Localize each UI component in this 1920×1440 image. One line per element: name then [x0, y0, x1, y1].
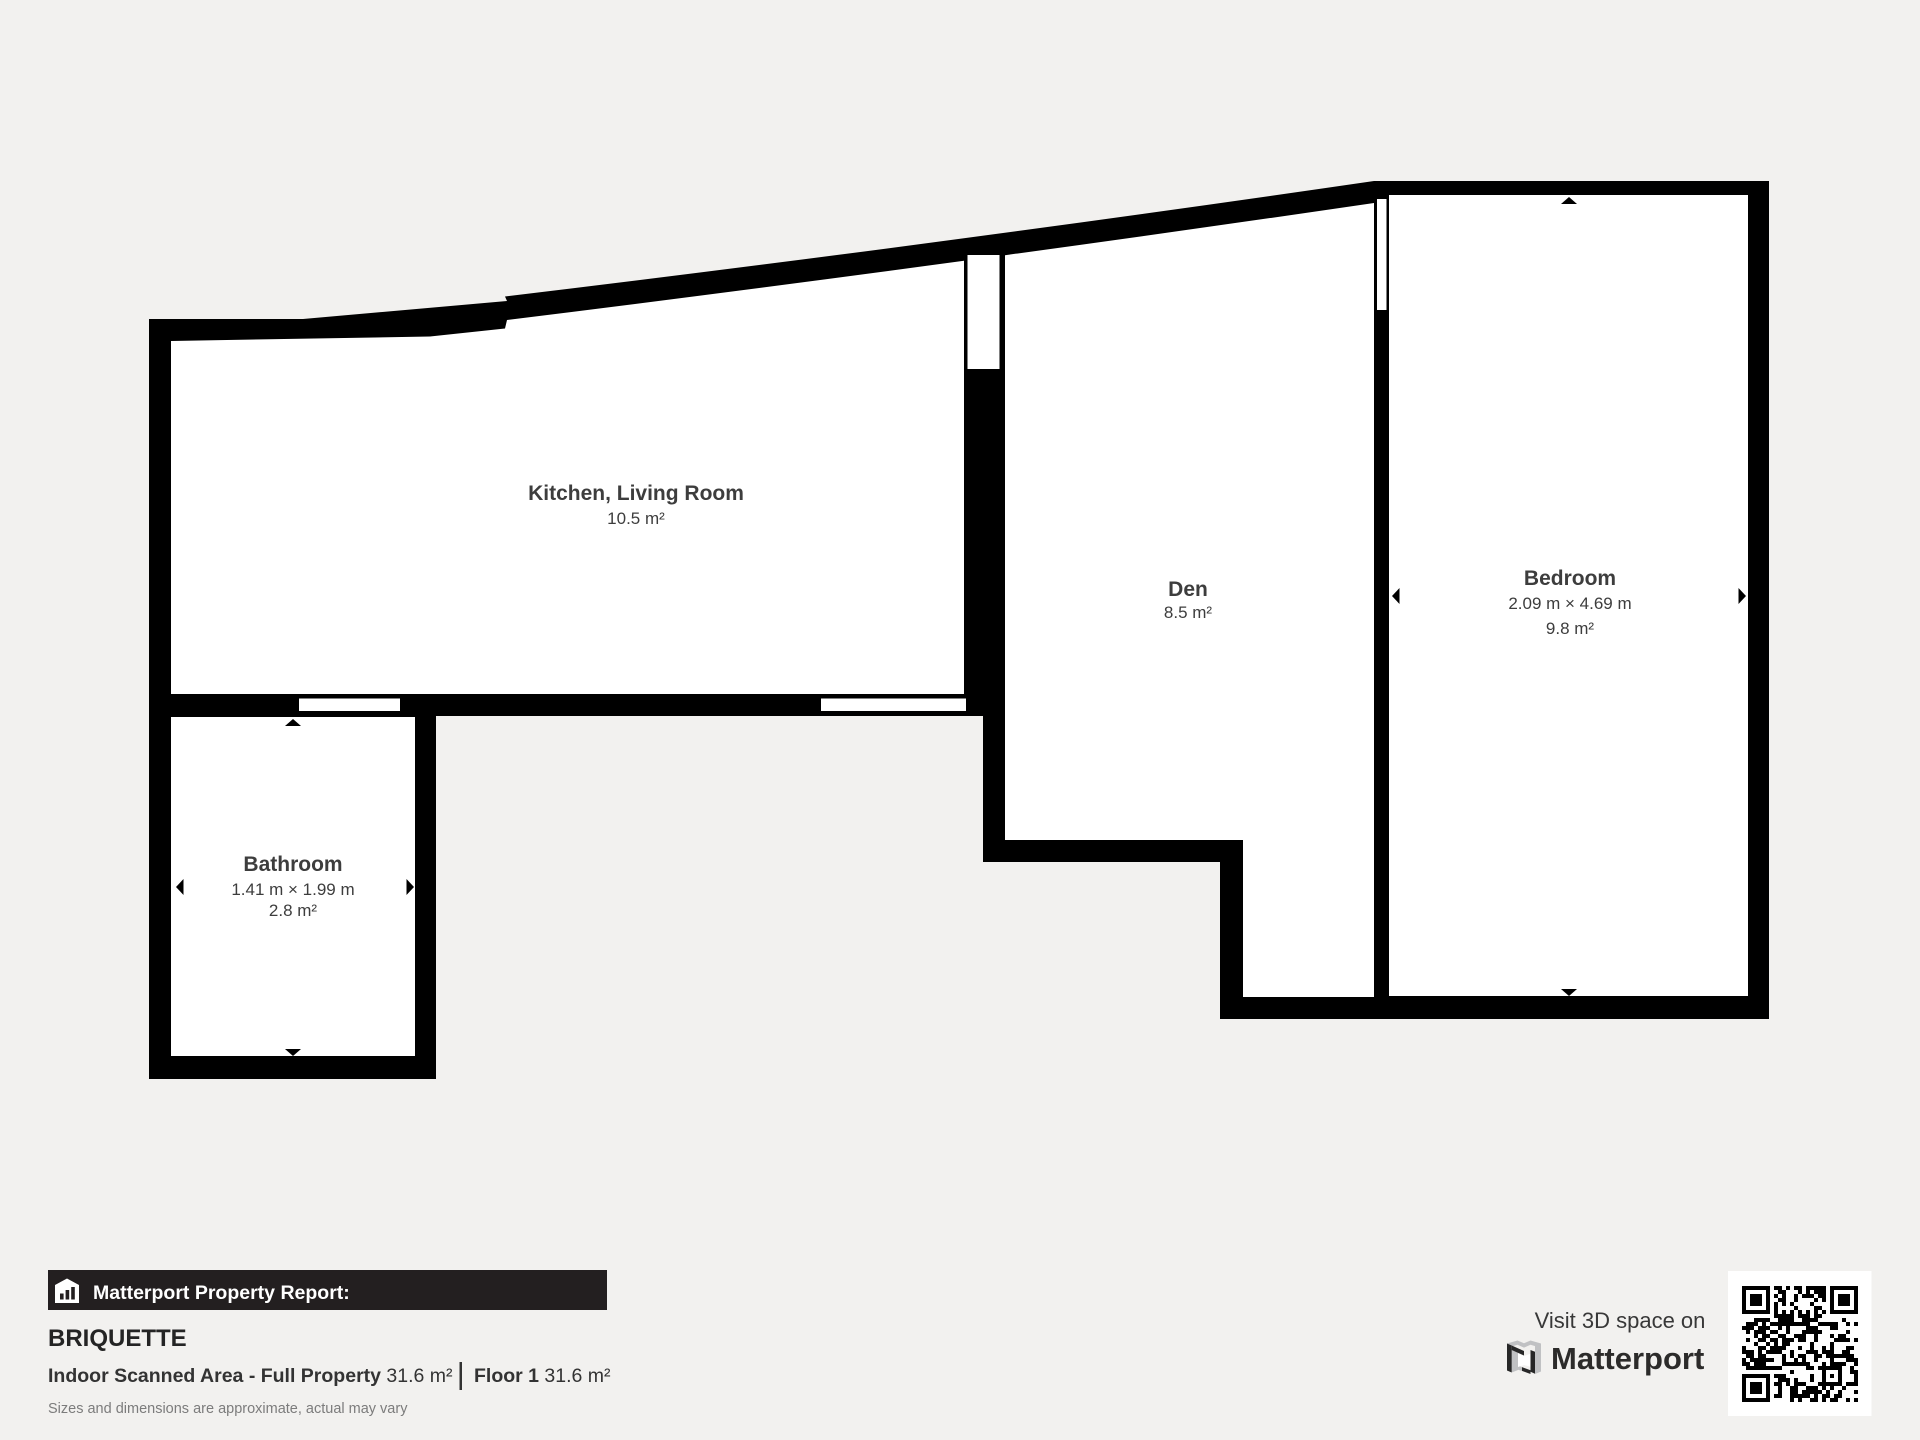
svg-text:Floor 1 31.6 m²: Floor 1 31.6 m²	[474, 1365, 611, 1387]
svg-text:Matterport Property Report:: Matterport Property Report:	[93, 1282, 350, 1304]
svg-text:Visit 3D space on: Visit 3D space on	[1535, 1308, 1706, 1333]
svg-text:Den: Den	[1168, 578, 1208, 601]
svg-text:9.8 m²: 9.8 m²	[1546, 619, 1595, 638]
svg-text:BRIQUETTE: BRIQUETTE	[48, 1325, 187, 1352]
svg-text:Indoor Scanned Area - Full Pro: Indoor Scanned Area - Full Property 31.6…	[48, 1365, 453, 1387]
svg-text:1.41 m × 1.99 m: 1.41 m × 1.99 m	[231, 880, 354, 899]
svg-text:2.09 m × 4.69 m: 2.09 m × 4.69 m	[1508, 594, 1631, 613]
svg-text:Bathroom: Bathroom	[243, 853, 342, 876]
svg-text:Kitchen, Living Room: Kitchen, Living Room	[528, 482, 744, 505]
svg-text:8.5 m²: 8.5 m²	[1164, 603, 1213, 622]
svg-text:Matterport: Matterport	[1551, 1341, 1704, 1376]
svg-text:10.5 m²: 10.5 m²	[607, 509, 665, 528]
svg-text:Sizes and dimensions are appro: Sizes and dimensions are approximate, ac…	[48, 1401, 408, 1417]
svg-text:Bedroom: Bedroom	[1524, 567, 1616, 590]
svg-text:2.8 m²: 2.8 m²	[269, 901, 318, 920]
